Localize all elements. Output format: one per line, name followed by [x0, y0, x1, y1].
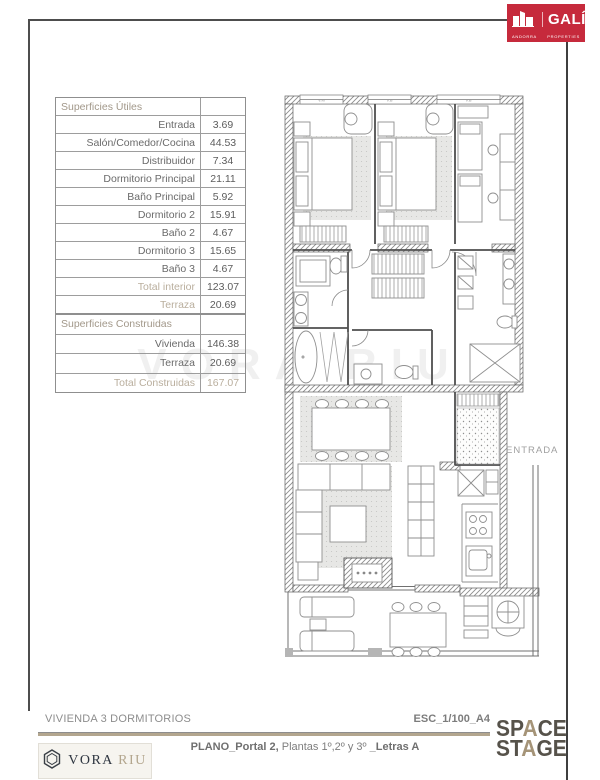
frame-right-line: [566, 40, 568, 780]
row-value: 20.69: [200, 354, 245, 373]
row-value: 4.67: [200, 224, 245, 241]
row-value: 146.38: [200, 335, 245, 354]
row-label: Vivienda: [56, 335, 200, 354]
table-superficies-construidas: Superficies Construidas Vivienda146.38 T…: [55, 314, 246, 393]
row-label: Salón/Comedor/Cocina: [56, 134, 200, 151]
row-value: 4.67: [200, 260, 245, 277]
table-row: Distribuidor7.34: [56, 151, 245, 169]
table-row-terraza: Terraza20.69: [56, 295, 245, 313]
table-row: Baño 34.67: [56, 259, 245, 277]
plano-portal: PLANO_Portal 2,: [191, 741, 279, 753]
plano-line: PLANO_Portal 2, Plantas 1º,2º y 3º _Letr…: [120, 741, 490, 753]
hexagon-icon: [43, 749, 61, 774]
buildings-icon: [512, 8, 538, 32]
row-value: 21.11: [200, 170, 245, 187]
row-label: Terraza: [56, 296, 200, 313]
vora-riu-wordmark: VORA RIU: [68, 753, 147, 769]
table-row-total-construidas: Total Construidas167.07: [56, 373, 245, 393]
row-label: Total interior: [56, 278, 200, 295]
table-row: Terraza20.69: [56, 353, 245, 373]
row-value: 3.69: [200, 116, 245, 133]
gali-subtitle: ANDORRA PROPERTIES: [512, 34, 580, 39]
space-stage-line2: STAGE: [496, 740, 567, 761]
table-header-value-cell: [200, 315, 245, 334]
row-value: 7.34: [200, 152, 245, 169]
table-superficies-utiles: Superficies Útiles Entrada3.69 Salón/Com…: [55, 97, 246, 314]
terrace: [285, 596, 524, 657]
dining-area: [300, 396, 402, 462]
scale-label: ESC_1/100_A4: [350, 713, 490, 725]
entry-vestibule: [457, 394, 499, 464]
entrada-label: ENTRADA: [506, 445, 558, 456]
row-value: 167.07: [200, 374, 245, 393]
table-header-row: Superficies Útiles: [56, 98, 245, 115]
table-row: Dormitorio 315.65: [56, 241, 245, 259]
table-row: Salón/Comedor/Cocina44.53: [56, 133, 245, 151]
bano-2: [354, 254, 424, 384]
footer-rule: [38, 732, 490, 736]
row-label: Baño Principal: [56, 188, 200, 205]
row-value: 20.69: [200, 296, 245, 313]
row-label: Terraza: [56, 354, 200, 373]
row-label: Dormitorio 2: [56, 206, 200, 223]
table-header-row: Superficies Construidas: [56, 315, 245, 334]
table-row: Dormitorio Principal21.11: [56, 169, 245, 187]
plano-letras: _Letras A: [370, 741, 420, 753]
table-row: Entrada3.69: [56, 115, 245, 133]
row-label: Dormitorio 3: [56, 242, 200, 259]
plano-plantas: Plantas 1º,2º y 3º: [279, 741, 370, 753]
dwelling-title: VIVIENDA 3 DORMITORIOS: [45, 713, 191, 725]
gali-sub-right: PROPERTIES: [547, 34, 580, 39]
vora-word: VORA: [68, 753, 113, 768]
row-label: Distribuidor: [56, 152, 200, 169]
vora-riu-logo: VORA RIU: [38, 743, 152, 779]
row-value: 44.53: [200, 134, 245, 151]
living-area: [296, 464, 434, 588]
frame-top-line: [28, 19, 508, 21]
space-stage-logo: SPACE STAGE: [496, 719, 567, 760]
row-label: Total Construidas: [56, 374, 200, 393]
kitchen: [458, 470, 498, 582]
floor-plan: V.M V.B V.B: [283, 92, 563, 667]
window-label-1: V.M: [318, 97, 325, 102]
frame-left-line: [28, 19, 30, 711]
gali-sub-left: ANDORRA: [512, 34, 537, 39]
row-label: Dormitorio Principal: [56, 170, 200, 187]
plan-sheet: GALÍ ANDORRA PROPERTIES Superficies Útil…: [0, 0, 600, 780]
row-label: Baño 2: [56, 224, 200, 241]
gali-logo: GALÍ ANDORRA PROPERTIES: [507, 4, 585, 42]
table-row-total-interior: Total interior123.07: [56, 277, 245, 295]
table-row: Dormitorio 215.91: [56, 205, 245, 223]
table-row: Vivienda146.38: [56, 334, 245, 354]
row-label: Entrada: [56, 116, 200, 133]
window-label-3: V.B: [465, 97, 471, 102]
row-value: 5.92: [200, 188, 245, 205]
row-label: Baño 3: [56, 260, 200, 277]
bedroom-3: [458, 106, 515, 222]
bedroom-2: [378, 104, 453, 242]
table-header-value-cell: [200, 98, 245, 115]
gali-logo-main: GALÍ: [512, 8, 580, 32]
bano-principal: [294, 256, 348, 383]
table-row: Baño Principal5.92: [56, 187, 245, 205]
riu-word: RIU: [118, 753, 147, 768]
table-title: Superficies Construidas: [56, 315, 200, 334]
bano-3: [458, 254, 520, 382]
bedroom-principal: [294, 104, 372, 242]
row-value: 15.65: [200, 242, 245, 259]
row-value: 123.07: [200, 278, 245, 295]
table-title: Superficies Útiles: [56, 98, 200, 115]
table-row: Baño 24.67: [56, 223, 245, 241]
row-value: 15.91: [200, 206, 245, 223]
gali-wordmark: GALÍ: [542, 12, 586, 27]
window-label-2: V.B: [386, 97, 392, 102]
